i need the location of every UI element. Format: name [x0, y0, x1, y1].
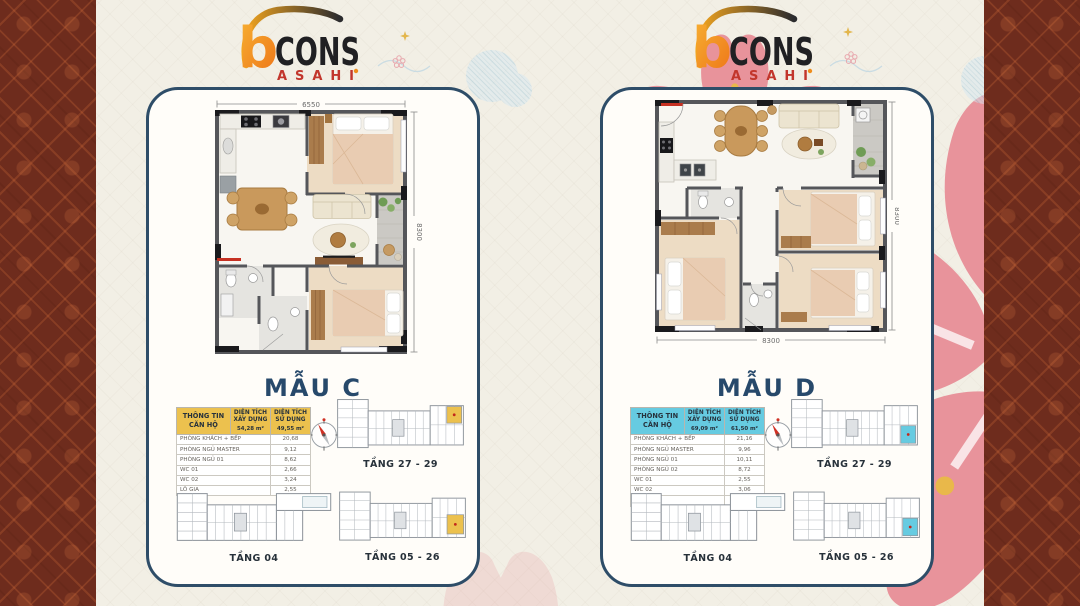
room-area-value: 9,12 [270, 445, 310, 455]
room-area-value: 2,55 [724, 475, 764, 485]
sofa [313, 195, 371, 219]
wc-floor [743, 284, 777, 328]
floor-plate-tang-05-26: TẦNG 05 - 26 [337, 488, 468, 563]
logo-graphic: b CONS ASAHI [228, 2, 398, 84]
floor-plate-diagram [789, 396, 920, 452]
floorplan-card-c: 6550 8300 [146, 87, 480, 587]
wardrobe [309, 116, 324, 164]
spec-header-use-area: DIỆN TÍCH SỬ DỤNG49,55 m² [270, 408, 310, 435]
floor-label: TẦNG 04 [173, 553, 335, 564]
plant [856, 147, 866, 157]
spec-row: PHÒNG KHÁCH + BẾP21,16 [631, 435, 765, 445]
spec-header-use-area: DIỆN TÍCH SỬ DỤNG61,50 m² [724, 408, 764, 435]
spec-row: WC 012,55 [631, 475, 765, 485]
room-label: PHÒNG NGỦ 01 [631, 455, 725, 465]
logo-graphic: b CONS ASAHI [682, 2, 852, 84]
logo-text-cons: CONS [729, 30, 814, 74]
room-area-value: 2,66 [270, 465, 310, 475]
floor-plate-diagram [337, 488, 468, 545]
floor-label: TẦNG 27 - 29 [335, 459, 466, 470]
tv-console [315, 257, 363, 265]
washing-machine [856, 108, 870, 122]
floor-label: TẦNG 27 - 29 [789, 459, 920, 470]
dimension-label-width: 6550 [302, 101, 320, 109]
floor-plate-tang-04: TẦNG 04 [627, 488, 789, 564]
floorplan-card-d: 8300 8300 [600, 87, 934, 587]
stove [660, 138, 673, 153]
room-label: PHÒNG NGỦ MASTER [631, 445, 725, 455]
logo-dot [354, 69, 358, 73]
stove [241, 116, 261, 128]
window [657, 274, 662, 310]
entry-door-marker [217, 258, 241, 261]
spec-row: PHÒNG NGỦ 028,72 [631, 465, 765, 475]
floor-plate-diagram [791, 488, 922, 545]
spec-row: PHÒNG NGỦ 018,62 [177, 455, 311, 465]
sink [725, 198, 734, 207]
coffee-table [798, 137, 812, 151]
room-area-value: 3,24 [270, 475, 310, 485]
logo-text-cons: CONS [275, 30, 360, 74]
spec-row: PHÒNG NGỦ MASTER9,12 [177, 445, 311, 455]
decorative-border-right [984, 0, 1080, 606]
spec-row: PHÒNG KHÁCH + BẾP20,68 [177, 435, 311, 445]
floor-plate-tang-04: TẦNG 04 [173, 488, 335, 564]
room-label: PHÒNG KHÁCH + BẾP [631, 435, 725, 445]
room-label: PHÒNG NGỦ MASTER [177, 445, 271, 455]
dimension-label-height: 8300 [415, 223, 423, 241]
plant [379, 198, 388, 207]
panel-mau-c: b CONS ASAHI 6550 8300 [145, 0, 481, 606]
brochure-page: b CONS ASAHI 6550 8300 [0, 0, 1080, 606]
floor-plate-tang-05-26: TẦNG 05 - 26 [791, 488, 922, 563]
sink [249, 274, 258, 283]
spec-header-build-area: DIỆN TÍCH XÂY DỰNG54,28 m² [230, 408, 270, 435]
logo-letter-b: b [238, 16, 278, 81]
room-label: PHÒNG KHÁCH + BẾP [177, 435, 271, 445]
bcons-asahi-logo: b CONS ASAHI [682, 2, 852, 84]
floor-plate-diagram [627, 488, 789, 546]
kitchen-counter [220, 114, 305, 129]
bcons-asahi-logo: b CONS ASAHI [228, 2, 398, 84]
window [401, 120, 406, 172]
floor-plate-tang-27-29: TẦNG 27 - 29 [789, 396, 920, 470]
room-label: PHÒNG NGỦ 02 [631, 465, 725, 475]
room-area-value: 21,16 [724, 435, 764, 445]
room-area-value: 9,96 [724, 445, 764, 455]
room-area-value: 8,62 [270, 455, 310, 465]
spec-header-info: THÔNG TIN CĂN HỘ [631, 408, 685, 435]
coffee-table [331, 233, 346, 248]
floor-label: TẦNG 04 [627, 553, 789, 564]
floor-label: TẦNG 05 - 26 [337, 552, 468, 563]
logo-letter-b: b [692, 16, 732, 81]
spec-header-info: THÔNG TIN CĂN HỘ [177, 408, 231, 435]
dimension-label-width: 8300 [762, 337, 780, 345]
room-area-value: 8,72 [724, 465, 764, 475]
floor-plate-tang-27-29: TẦNG 27 - 29 [335, 396, 466, 470]
room-area-value: 20,68 [270, 435, 310, 445]
spec-row: PHÒNG NGỦ 0110,11 [631, 455, 765, 465]
toilet [699, 196, 708, 209]
logo-dot [808, 69, 812, 73]
wc2-floor [259, 296, 307, 350]
dimension-label-height: 8300 [893, 207, 899, 225]
floor-plate-diagram [173, 488, 335, 546]
spec-table-header: THÔNG TIN CĂN HỘDIỆN TÍCH XÂY DỰNG54,28 … [177, 408, 311, 435]
refrigerator [220, 176, 236, 193]
floor-plan-mau-d: 8300 8300 [651, 96, 899, 348]
panel-mau-d: b CONS ASAHI 8300 8300 [599, 0, 935, 606]
unit-spec-table: THÔNG TIN CĂN HỘDIỆN TÍCH XÂY DỰNG54,28 … [176, 407, 311, 496]
floor-plan-mau-c: 6550 8300 [211, 98, 423, 358]
wardrobe [661, 222, 715, 235]
spec-row: WC 012,66 [177, 465, 311, 475]
spec-table-header: THÔNG TIN CĂN HỘDIỆN TÍCH XÂY DỰNG69,09 … [631, 408, 765, 435]
entry-door-marker [661, 103, 683, 106]
sofa [779, 104, 839, 128]
floor-label: TẦNG 05 - 26 [791, 552, 922, 563]
decorative-border-left [0, 0, 96, 606]
room-label: PHÒNG NGỦ 01 [177, 455, 271, 465]
spec-row: WC 023,24 [177, 475, 311, 485]
room-label: WC 01 [177, 465, 271, 475]
room-label: WC 02 [177, 475, 271, 485]
spec-row: PHÒNG NGỦ MASTER9,96 [631, 445, 765, 455]
spec-header-build-area: DIỆN TÍCH XÂY DỰNG69,09 m² [684, 408, 724, 435]
room-area-value: 10,11 [724, 455, 764, 465]
floor-plate-diagram [335, 396, 466, 452]
room-label: WC 01 [631, 475, 725, 485]
